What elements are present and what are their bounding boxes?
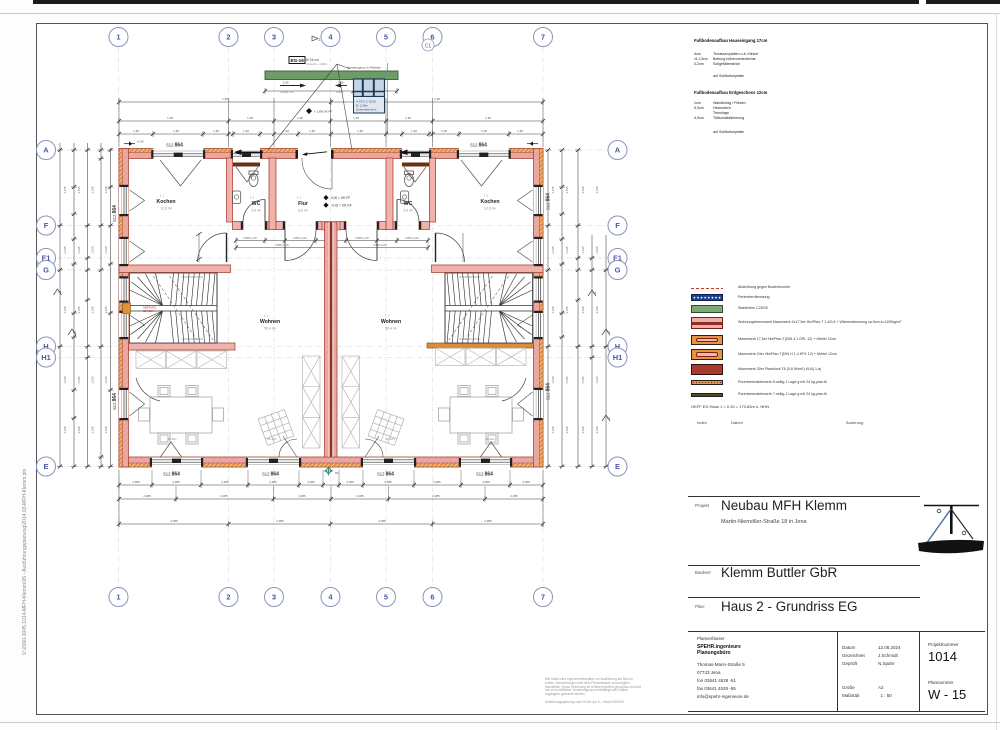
svg-text:Wh-d/Kn: Wh-d/Kn bbox=[267, 438, 277, 441]
svg-text:324,90A: 324,90A bbox=[143, 309, 154, 313]
svg-text:1,135: 1,135 bbox=[595, 426, 599, 434]
svg-text:0,885+2,135: 0,885+2,135 bbox=[275, 244, 289, 247]
svg-text:1.1: 1.1 bbox=[402, 196, 406, 200]
svg-text:2,385: 2,385 bbox=[384, 480, 392, 484]
svg-text:1,135: 1,135 bbox=[104, 376, 108, 384]
svg-text:1,135: 1,135 bbox=[565, 376, 569, 384]
svg-text:+0,35: +0,35 bbox=[137, 140, 145, 144]
svg-text:WC: WC bbox=[252, 201, 261, 207]
svg-text:1,135: 1,135 bbox=[104, 426, 108, 434]
svg-text:1,135: 1,135 bbox=[581, 306, 585, 314]
svg-text:1,38: 1,38 bbox=[133, 129, 139, 133]
svg-text:1,135: 1,135 bbox=[91, 426, 95, 434]
svg-text:2,385: 2,385 bbox=[143, 494, 151, 498]
svg-text:1,135: 1,135 bbox=[63, 246, 67, 254]
svg-text:Flur: Flur bbox=[298, 201, 308, 207]
svg-text:1,135: 1,135 bbox=[595, 306, 599, 314]
svg-text:2,385: 2,385 bbox=[298, 494, 306, 498]
svg-text:1,50: 1,50 bbox=[283, 81, 289, 85]
svg-text:WC: WC bbox=[404, 201, 413, 207]
svg-text:1,135: 1,135 bbox=[595, 186, 599, 194]
svg-text:0,885+2,135: 0,885+2,135 bbox=[293, 237, 307, 240]
svg-text:2,385: 2,385 bbox=[170, 519, 178, 523]
svg-text:2,385: 2,385 bbox=[221, 480, 229, 484]
svg-text:1,38: 1,38 bbox=[485, 116, 491, 120]
svg-text:1,38: 1,38 bbox=[411, 129, 417, 133]
svg-text:1,135: 1,135 bbox=[63, 426, 67, 434]
svg-text:2,9 m²: 2,9 m² bbox=[403, 209, 413, 213]
svg-text:1,135: 1,135 bbox=[63, 376, 67, 384]
svg-text:1,135: 1,135 bbox=[91, 246, 95, 254]
svg-text:C1: C1 bbox=[425, 44, 432, 50]
svg-text:E: E bbox=[615, 462, 620, 471]
svg-text:5: 5 bbox=[384, 33, 388, 42]
svg-text:H1: H1 bbox=[41, 353, 51, 362]
svg-text:Antritt: Antritt bbox=[336, 90, 344, 94]
svg-text:1,135: 1,135 bbox=[104, 306, 108, 314]
svg-text:2,385: 2,385 bbox=[433, 480, 441, 484]
svg-text:2: 2 bbox=[226, 33, 230, 42]
svg-text:-0,02 = OK RF: -0,02 = OK RF bbox=[331, 204, 352, 208]
svg-text:1.1: 1.1 bbox=[385, 314, 389, 318]
svg-text:1,38: 1,38 bbox=[247, 116, 253, 120]
svg-text:G: G bbox=[43, 266, 49, 275]
svg-text:S12 864: S12 864 bbox=[112, 393, 118, 410]
svg-text:1,135: 1,135 bbox=[581, 376, 585, 384]
svg-text:12,9 m²: 12,9 m² bbox=[484, 207, 496, 211]
svg-text:1,38: 1,38 bbox=[222, 97, 228, 101]
svg-text:2,385: 2,385 bbox=[510, 494, 518, 498]
svg-text:+ 2,68 OK FF: + 2,68 OK FF bbox=[314, 110, 332, 114]
svg-text:7: 7 bbox=[541, 593, 545, 602]
svg-text:5: 5 bbox=[384, 593, 388, 602]
svg-text:1,135: 1,135 bbox=[565, 306, 569, 314]
svg-text:S12 864: S12 864 bbox=[476, 472, 493, 478]
svg-text:1.1: 1.1 bbox=[160, 194, 164, 198]
svg-text:1,135: 1,135 bbox=[63, 186, 67, 194]
svg-text:50,4 m²: 50,4 m² bbox=[385, 327, 397, 331]
svg-text:F: F bbox=[615, 221, 620, 230]
svg-text:1,135: 1,135 bbox=[551, 376, 555, 384]
svg-text:1,38: 1,38 bbox=[283, 129, 289, 133]
svg-text:0,885+2,135: 0,885+2,135 bbox=[405, 237, 419, 240]
svg-text:1: 1 bbox=[116, 593, 120, 602]
svg-text:2,385: 2,385 bbox=[220, 494, 228, 498]
svg-text:EG-16: EG-16 bbox=[291, 58, 305, 63]
svg-text:1,135: 1,135 bbox=[581, 246, 585, 254]
svg-text:1,135: 1,135 bbox=[551, 246, 555, 254]
svg-text:1,135: 1,135 bbox=[77, 186, 81, 194]
svg-text:3: 3 bbox=[272, 33, 276, 42]
svg-text:H1: H1 bbox=[613, 353, 623, 362]
svg-text:Kochen: Kochen bbox=[156, 199, 175, 205]
svg-text:2,385: 2,385 bbox=[378, 519, 386, 523]
svg-text:1,38: 1,38 bbox=[441, 129, 447, 133]
svg-text:Gefälle 2%: Gefälle 2% bbox=[280, 90, 294, 94]
svg-text:1,135: 1,135 bbox=[551, 186, 555, 194]
svg-text:2,385: 2,385 bbox=[346, 480, 354, 484]
svg-text:2,385: 2,385 bbox=[356, 494, 364, 498]
svg-text:1,135: 1,135 bbox=[77, 376, 81, 384]
svg-text:1,135: 1,135 bbox=[581, 426, 585, 434]
svg-text:2,385: 2,385 bbox=[522, 480, 530, 484]
svg-text:Wh-d/Kn: Wh-d/Kn bbox=[385, 438, 395, 441]
svg-text:1.1: 1.1 bbox=[264, 314, 268, 318]
svg-text:Kochen: Kochen bbox=[480, 199, 499, 205]
svg-text:1,135: 1,135 bbox=[565, 186, 569, 194]
svg-text:h1: h1 bbox=[73, 330, 77, 334]
svg-text:50,4 m²: 50,4 m² bbox=[264, 327, 276, 331]
svg-text:1,135: 1,135 bbox=[551, 426, 555, 434]
svg-text:1,135: 1,135 bbox=[91, 186, 95, 194]
svg-text:1.1: 1.1 bbox=[297, 196, 301, 200]
svg-text:1,135: 1,135 bbox=[565, 246, 569, 254]
svg-text:A: A bbox=[43, 146, 49, 155]
svg-text:h1: h1 bbox=[593, 291, 597, 295]
svg-text:1,135: 1,135 bbox=[77, 306, 81, 314]
svg-text:Hauseingang 1x Palisade: Hauseingang 1x Palisade bbox=[347, 66, 381, 70]
svg-text:6: 6 bbox=[430, 593, 434, 602]
svg-text:1,135: 1,135 bbox=[581, 186, 585, 194]
svg-text:1,38: 1,38 bbox=[517, 129, 523, 133]
svg-text:Wohnen: Wohnen bbox=[381, 319, 401, 325]
svg-text:1,135: 1,135 bbox=[595, 376, 599, 384]
svg-text:1,38: 1,38 bbox=[297, 116, 303, 120]
svg-text:2,385: 2,385 bbox=[484, 519, 492, 523]
svg-text:1,135: 1,135 bbox=[63, 306, 67, 314]
svg-text:0,885+2,135: 0,885+2,135 bbox=[243, 237, 257, 240]
svg-text:1,38: 1,38 bbox=[481, 129, 487, 133]
svg-text:2,385: 2,385 bbox=[132, 480, 140, 484]
svg-text:2,9 m²: 2,9 m² bbox=[251, 209, 261, 213]
svg-text:S12 864: S12 864 bbox=[377, 472, 394, 478]
svg-text:S12 864: S12 864 bbox=[546, 193, 552, 210]
svg-text:2,385: 2,385 bbox=[172, 480, 180, 484]
svg-text:0,00 = OK FF: 0,00 = OK FF bbox=[331, 196, 350, 200]
svg-text:7: 7 bbox=[541, 33, 545, 42]
svg-text:1: 1 bbox=[116, 33, 120, 42]
svg-text:3: 3 bbox=[272, 593, 276, 602]
svg-text:2,385: 2,385 bbox=[482, 480, 490, 484]
svg-text:1,135: 1,135 bbox=[91, 376, 95, 384]
svg-text:2,385: 2,385 bbox=[307, 480, 315, 484]
svg-text:1,135: 1,135 bbox=[77, 426, 81, 434]
svg-text:Umwehr. +1,00m: Umwehr. +1,00m bbox=[306, 62, 328, 66]
svg-text:Wohnen: Wohnen bbox=[260, 319, 280, 325]
svg-text:2,385: 2,385 bbox=[432, 494, 440, 498]
svg-text:1.1: 1.1 bbox=[484, 194, 488, 198]
svg-text:A: A bbox=[615, 146, 621, 155]
svg-text:1,38: 1,38 bbox=[243, 129, 249, 133]
svg-text:0,885+2,135: 0,885+2,135 bbox=[373, 244, 387, 247]
svg-text:E: E bbox=[43, 462, 48, 471]
svg-text:h1: h1 bbox=[59, 290, 63, 294]
svg-text:1,38: 1,38 bbox=[309, 129, 315, 133]
svg-text:1,135: 1,135 bbox=[104, 246, 108, 254]
svg-text:S12 864: S12 864 bbox=[262, 472, 279, 478]
svg-text:0,885+2,135: 0,885+2,135 bbox=[355, 237, 369, 240]
svg-text:1,38: 1,38 bbox=[173, 129, 179, 133]
svg-text:1,135: 1,135 bbox=[595, 246, 599, 254]
svg-text:S12 864: S12 864 bbox=[163, 472, 180, 478]
svg-text:S12 864: S12 864 bbox=[112, 205, 118, 222]
svg-text:1,38: 1,38 bbox=[167, 116, 173, 120]
svg-text:S12 864: S12 864 bbox=[546, 383, 552, 400]
svg-text:2,385: 2,385 bbox=[269, 480, 277, 484]
svg-text:S12 864: S12 864 bbox=[470, 143, 487, 149]
svg-text:0,60: 0,60 bbox=[338, 81, 344, 85]
svg-text:6,6 m²: 6,6 m² bbox=[298, 209, 308, 213]
svg-text:2: 2 bbox=[226, 593, 230, 602]
svg-text:1,135: 1,135 bbox=[565, 426, 569, 434]
svg-text:±0: ±0 bbox=[335, 471, 339, 475]
svg-text:1,135: 1,135 bbox=[91, 306, 95, 314]
svg-text:1.1: 1.1 bbox=[250, 196, 254, 200]
svg-text:1,38: 1,38 bbox=[213, 129, 219, 133]
svg-text:1,135: 1,135 bbox=[104, 186, 108, 194]
svg-text:Wh-d/Kn: Wh-d/Kn bbox=[167, 438, 177, 441]
svg-text:1,135: 1,135 bbox=[551, 306, 555, 314]
svg-text:2,385: 2,385 bbox=[276, 519, 284, 523]
svg-text:Wh-d/Kn: Wh-d/Kn bbox=[485, 438, 495, 441]
svg-text:G: G bbox=[615, 266, 621, 275]
svg-text:1,38: 1,38 bbox=[357, 129, 363, 133]
svg-text:1,38: 1,38 bbox=[405, 116, 411, 120]
svg-text:h1: h1 bbox=[607, 330, 611, 334]
svg-text:h1: h1 bbox=[607, 416, 611, 420]
svg-text:1,135: 1,135 bbox=[77, 246, 81, 254]
svg-text:Unterseite übm: Unterseite übm bbox=[356, 108, 377, 112]
svg-text:F: F bbox=[44, 221, 49, 230]
svg-text:1,38: 1,38 bbox=[434, 97, 440, 101]
svg-text:12,9 m²: 12,9 m² bbox=[160, 207, 172, 211]
svg-text:1,38: 1,38 bbox=[353, 116, 359, 120]
svg-text:S12 864: S12 864 bbox=[166, 143, 183, 149]
